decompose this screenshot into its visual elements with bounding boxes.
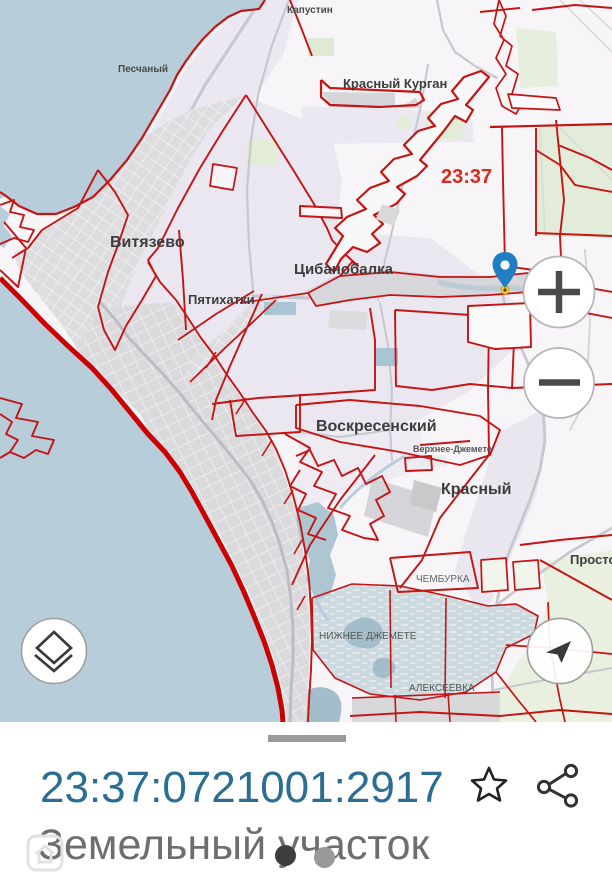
svg-text:Пятихатки: Пятихатки [188, 292, 255, 307]
svg-text:Простор: Простор [570, 552, 612, 567]
svg-text:Витязево: Витязево [110, 234, 185, 251]
svg-text:Красный: Красный [441, 481, 512, 498]
svg-text:ЧЕМБУРКА: ЧЕМБУРКА [416, 574, 470, 585]
svg-text:АЛЕКСЕЕВКА: АЛЕКСЕЕВКА [409, 683, 475, 694]
svg-text:Капустин: Капустин [287, 5, 333, 16]
svg-text:23:37: 23:37 [441, 166, 492, 188]
svg-text:Верхнее-Джемете: Верхнее-Джемете [413, 444, 492, 454]
svg-text:Цибанобалка: Цибанобалка [294, 261, 394, 278]
svg-text:Песчаный: Песчаный [118, 64, 168, 75]
svg-text:Воскресенский: Воскресенский [316, 418, 437, 435]
svg-text:Красный Курган: Красный Курган [343, 76, 447, 91]
svg-text:НИЖНЕЕ ДЖЕМЕТЕ: НИЖНЕЕ ДЖЕМЕТЕ [319, 631, 417, 642]
